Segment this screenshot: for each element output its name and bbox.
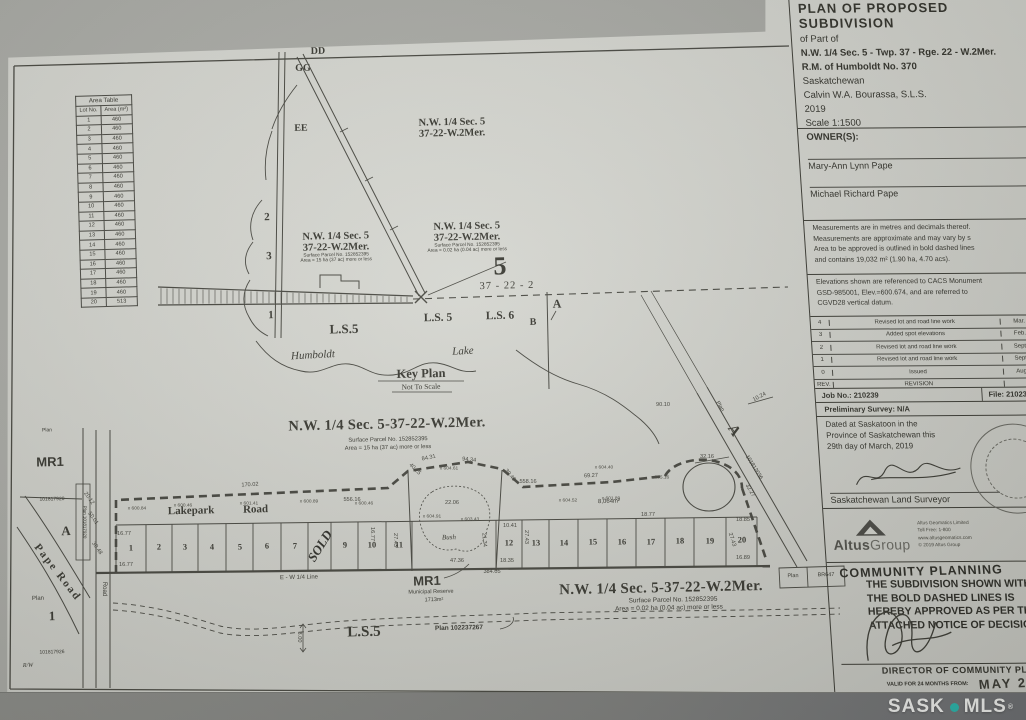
kp-quarter-left: N.W. 1/4 Sec. 5 37-22-W.2Mer. Surface Pa… [300, 230, 372, 263]
valid-label: VALID FOR 24 MONTHS FROM: [887, 681, 969, 688]
lot-number: 4 [210, 542, 214, 551]
area-table: Area Table Lot No. Area (m²) 14602460346… [75, 94, 138, 308]
spot-elevation: x 601.89 [602, 496, 620, 501]
lot-number: 20 [737, 536, 746, 545]
ew-quarter-label: E - W 1/4 Line [280, 574, 318, 581]
watermark-reg: ® [1008, 704, 1014, 711]
dimension-label: 47.36 [450, 559, 464, 565]
dimension-label: 558.16 [519, 480, 536, 486]
owners-label: OWNER(S): [806, 130, 1026, 143]
mls-dot-icon [950, 703, 959, 712]
dimension-label: 16.77 [119, 563, 133, 569]
kp-ls5-big: L.S.5 [329, 322, 358, 336]
plan-title: PLAN OF PROPOSED SUBDIVISION [797, 0, 1026, 31]
owner-name-1: Mary-Ann Lynn Pape [808, 159, 1026, 171]
dimension-label: 21.34 [479, 533, 486, 547]
kp-section-number: 5 [493, 252, 507, 280]
area-table-row: 20513 [81, 297, 137, 308]
lake-shoreline-2 [516, 350, 659, 444]
west-road-word: Road [101, 582, 107, 596]
ls5-bottom-label: L.S.5 [347, 625, 381, 641]
west-plan-no-2: 101817926 [39, 650, 64, 656]
dimension-label: 27.43 [522, 530, 528, 544]
west-mr1: MR1 [36, 455, 64, 469]
dated-box: Dated at Saskatoon in the Province of Sa… [817, 415, 1026, 509]
lot-number: 19 [706, 536, 715, 545]
valid-date-stamp: MAY 27 [978, 675, 1026, 692]
west-parcel-a: A [61, 524, 71, 538]
mr1-sub-label: Municipal Reserve [408, 590, 453, 597]
kp-label-gg: GG [295, 64, 311, 75]
lot-number: 14 [559, 538, 568, 547]
dimension-label: 16.89 [736, 556, 750, 562]
lot-number: 18 [675, 537, 684, 546]
dimension-label: 22.06 [445, 501, 459, 507]
kp-label-1: 1 [268, 310, 274, 322]
mr1-label: MR1 [413, 574, 441, 589]
dimension-label: 32.16 [700, 455, 714, 461]
kp-label-dd: DD [311, 47, 326, 58]
lot-number: 1 [129, 543, 133, 552]
altus-box: AltusGroup Altus Geomatics Limited Toll … [823, 507, 1026, 563]
altus-name: AltusGroup [833, 536, 911, 553]
lot-number: 12 [505, 539, 514, 548]
owners-box: OWNER(S): Mary-Ann Lynn Pape Michael Ric… [798, 127, 1026, 221]
sask-mls-watermark: SASK MLS ® [888, 696, 1014, 718]
dimension-label: 16.77 [368, 527, 374, 541]
spot-elevation: x 600.89 [300, 499, 318, 504]
kp-label-3: 3 [266, 251, 272, 263]
revision-table: 4Revised lot and road line workMar. 29, … [810, 315, 1026, 389]
dimension-label: 3.00 [295, 632, 301, 643]
kp-ls5: L.S. 5 [424, 312, 453, 325]
lot-number: 10 [368, 540, 377, 549]
lot-number: 16 [617, 537, 626, 546]
lot-number: 17 [646, 537, 655, 546]
kp-section-sub: 37 - 22 - 2 [480, 280, 535, 292]
dimension-label: 90.10 [656, 403, 670, 409]
spot-elevation: x 605.16 [651, 475, 669, 480]
dimension-label: 18.85 [736, 518, 750, 524]
west-plan-strip: Plan 101817920 [82, 506, 87, 539]
lot-number: 6 [265, 542, 269, 551]
west-plan-word: Plan [32, 596, 44, 603]
job-file-row: Job No.: 210239 File: 210239PR-A-R4 [815, 387, 1026, 403]
title-block-title: PLAN OF PROPOSED SUBDIVISION of Part of … [789, 0, 1026, 129]
mr1-area-label: 1713m² [425, 598, 444, 604]
spot-elevation: x 604.61 [440, 466, 458, 471]
lot-number: 15 [588, 538, 597, 547]
spot-elevation: x 603.43 [461, 517, 479, 522]
job-number: Job No.: 210239 [815, 390, 982, 400]
lot-number: 5 [237, 542, 241, 551]
file-number: File: 210239PR-A-R4 [981, 387, 1026, 401]
measurement-notes: Measurements are in metres and decimals … [804, 219, 1026, 275]
plan-box-plan: Plan [787, 574, 798, 580]
dimension-label: 384.05 [483, 570, 500, 576]
west-road [96, 430, 110, 688]
main-plan-linework [17, 291, 845, 688]
lot-number: 2 [157, 543, 161, 552]
kp-title: Key Plan [396, 367, 445, 381]
kp-quarter-right: N.W. 1/4 Sec. 5 37-22-W.2Mer. Surface Pa… [427, 220, 507, 254]
preliminary-survey-row: Preliminary Survey: N/A [816, 401, 1026, 417]
bush-label: Bush [442, 534, 456, 542]
kp-ls6: L.S. 6 [486, 310, 515, 323]
pond [683, 463, 735, 511]
elevation-note: Elevations shown are referenced to CACS … [808, 273, 1026, 317]
area-table-body: 1460246034604460546064607460846094601046… [76, 114, 137, 307]
dimension-label: 10.41 [503, 524, 517, 530]
dimension-label: 18.35 [500, 559, 514, 565]
spot-elevation: x 601.41 [240, 501, 258, 506]
lot-number: 13 [531, 538, 540, 547]
watermark-mls: MLS [964, 696, 1007, 718]
west-lot-1: 1 [49, 609, 56, 623]
dimension-label: 170.02 [241, 483, 258, 490]
plan-ref-label: Plan 102237267 [435, 625, 483, 633]
lot-number: 9 [342, 541, 346, 550]
photo-bottom-band: SASK MLS ® [0, 692, 1026, 720]
kp-quarter-upper: N.W. 1/4 Sec. 5 37-22-W.2Mer. [418, 116, 485, 139]
kp-a: A [553, 298, 562, 311]
dimension-label: 18.77 [641, 513, 655, 519]
kp-lake: Lake [452, 346, 474, 359]
approval-box: COMMUNITY PLANNING THE SUBDIVISION SHOWN… [827, 561, 1026, 697]
key-plan-lot-hatching [161, 288, 407, 304]
altus-contact: Altus Geomatics Limited Toll Free: 1-800… [917, 520, 973, 549]
director-signature [854, 590, 980, 681]
spot-elevation: x 600.46 [355, 501, 373, 506]
dimension-label: 27.43 [391, 533, 397, 547]
lot-number: 3 [183, 543, 187, 552]
watermark-sask: SASK [888, 696, 945, 718]
spot-elevation: x 600.46 [174, 503, 192, 508]
spot-elevation: x 604.91 [423, 514, 441, 519]
dimension-label: 69.27 [584, 474, 598, 480]
photo-background: Area Table Lot No. Area (m²) 14602460346… [0, 0, 1026, 720]
kp-b: B [530, 318, 537, 329]
spot-elevation: x 600.84 [128, 506, 146, 511]
west-rw: R/W [23, 663, 33, 670]
owner-name-2: Michael Richard Pape [810, 187, 1026, 199]
kp-subtitle: Not To Scale [401, 383, 440, 392]
lot-number: 7 [292, 541, 296, 550]
dimension-label: 16.77 [117, 532, 131, 538]
west-plan-top: Plan [42, 428, 52, 433]
kp-label-2: 2 [264, 212, 270, 224]
altus-logo-icon [853, 518, 888, 536]
spot-elevation: x 604.52 [559, 498, 577, 503]
kp-humboldt: Humboldt [291, 349, 336, 363]
kp-label-ee: EE [294, 124, 308, 135]
spot-elevation: x 604.40 [595, 465, 613, 470]
west-plan-no-1: 101817920 [39, 497, 64, 503]
